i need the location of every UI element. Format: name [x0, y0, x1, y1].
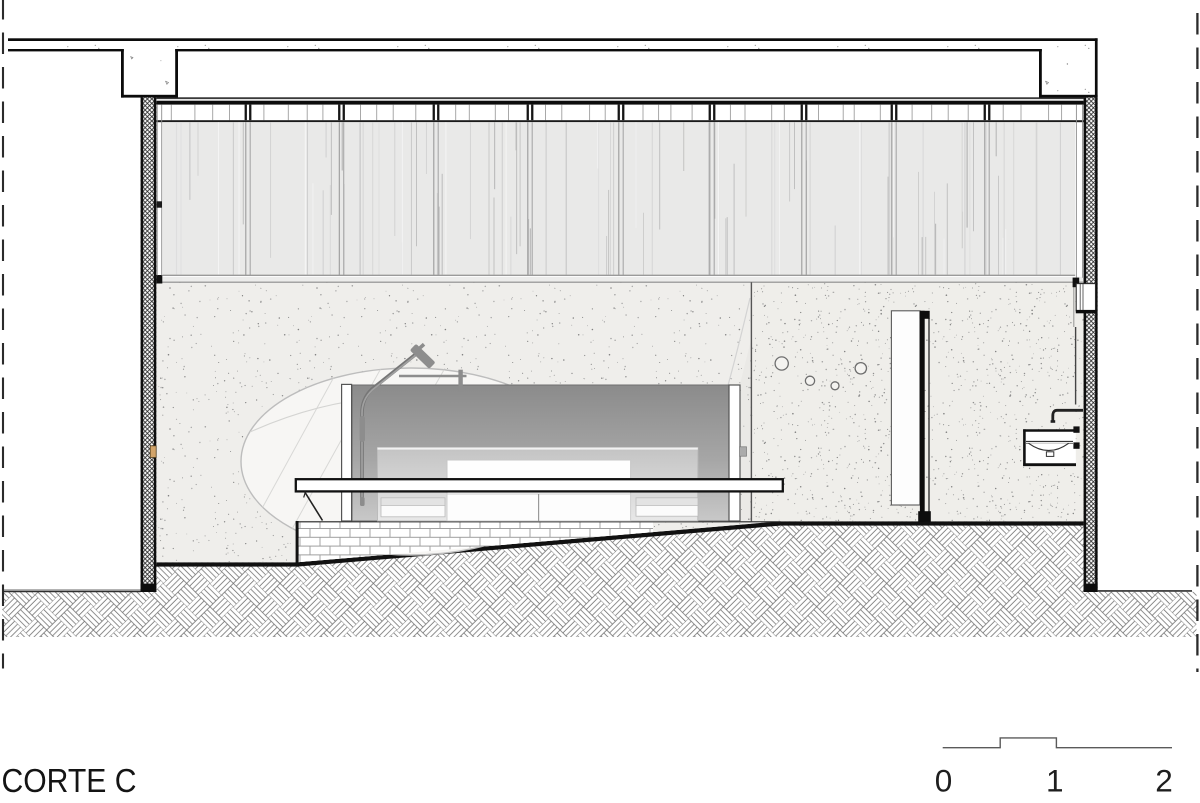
- svg-text:0: 0: [935, 763, 953, 799]
- svg-text:CORTE C: CORTE C: [2, 763, 137, 800]
- svg-text:2: 2: [1155, 763, 1173, 799]
- svg-text:1: 1: [1046, 763, 1064, 799]
